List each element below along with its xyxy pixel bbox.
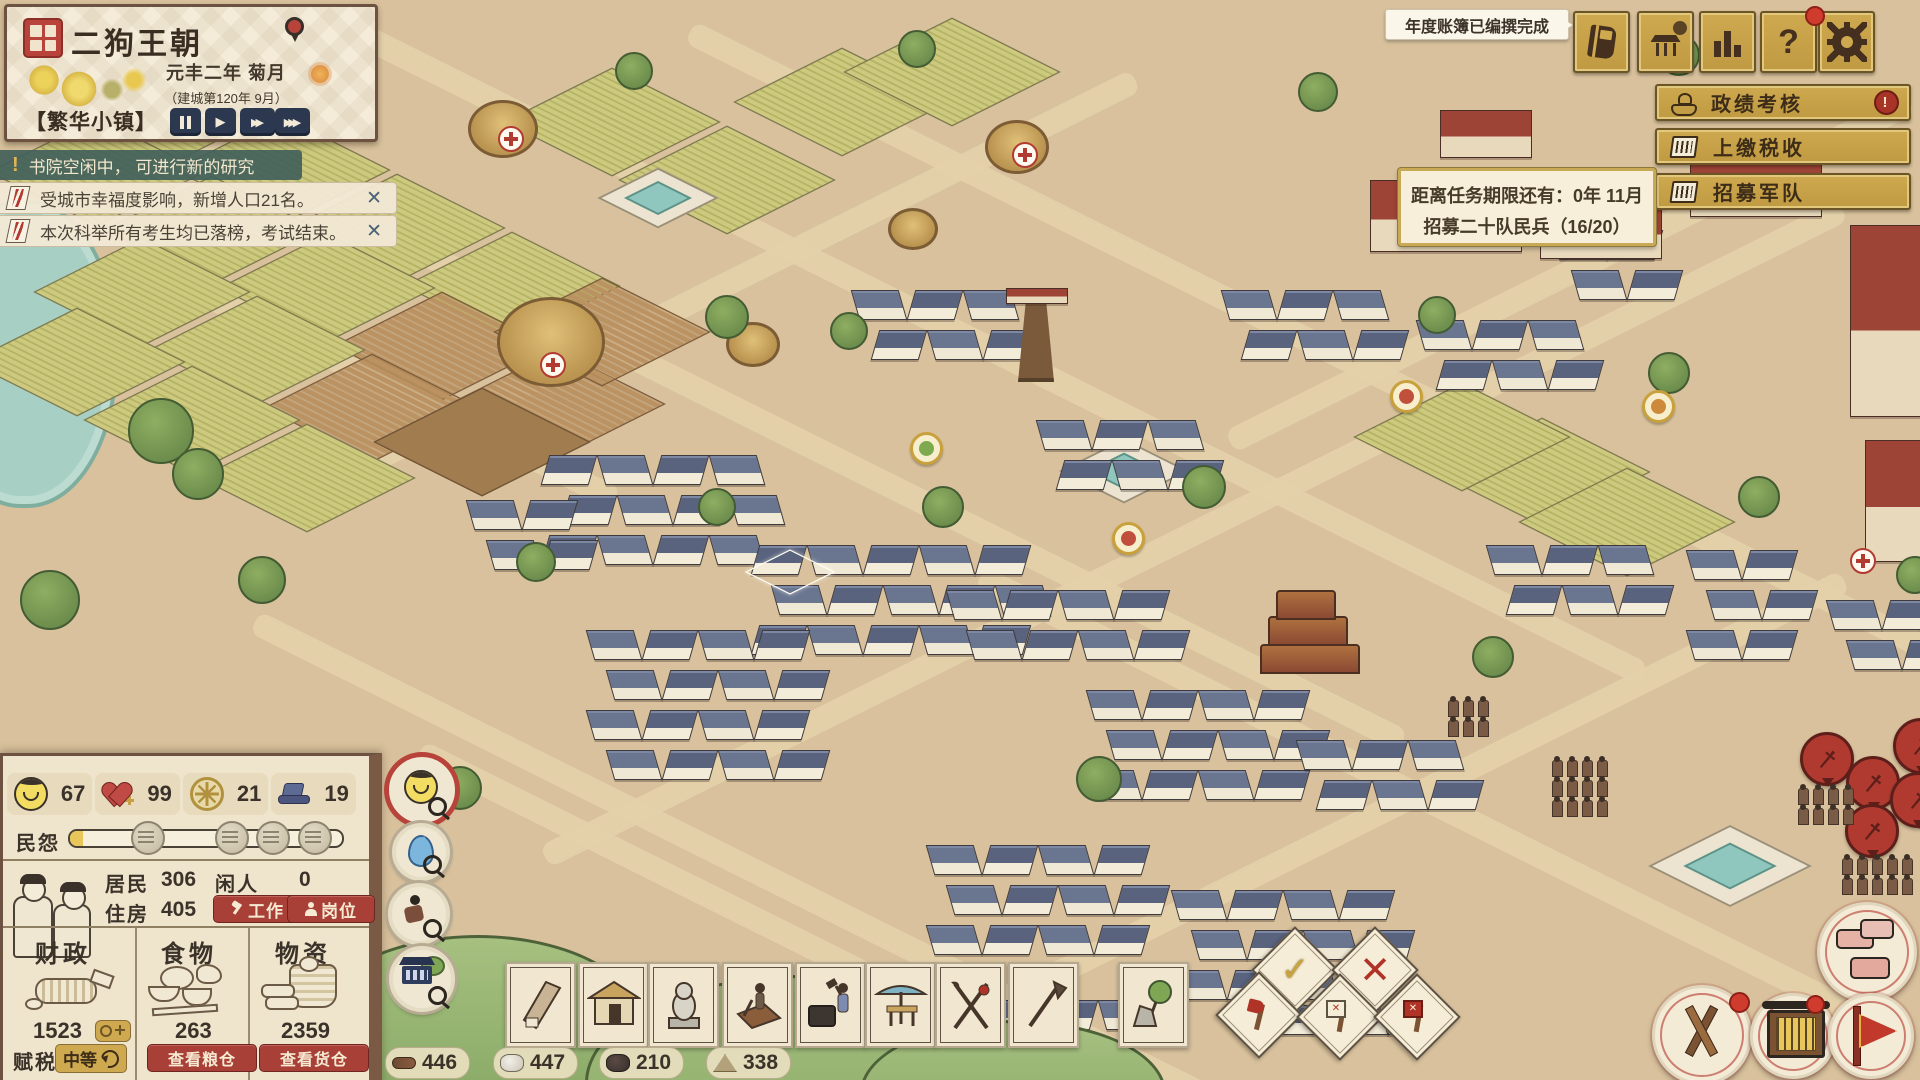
lion-statue-icon bbox=[657, 978, 711, 1032]
compass-ruler-icon bbox=[1675, 1004, 1727, 1056]
jobs-button[interactable]: 岗位 bbox=[287, 895, 375, 923]
play-button[interactable]: ▶ bbox=[205, 108, 236, 136]
map-house bbox=[966, 630, 1023, 660]
map-house bbox=[863, 625, 920, 655]
map-house bbox=[754, 710, 811, 740]
notification-exam[interactable]: 本次科举所有考生均已落榜，考试结束。 ✕ bbox=[0, 215, 397, 247]
map-house bbox=[466, 500, 523, 530]
tax-level-button[interactable]: 中等 bbox=[55, 1044, 127, 1073]
map-house bbox=[1002, 590, 1059, 620]
map-house bbox=[709, 455, 766, 485]
map-house bbox=[982, 845, 1039, 875]
official-icon bbox=[1671, 93, 1695, 113]
map-soldier bbox=[1597, 800, 1608, 817]
map-house bbox=[1112, 460, 1169, 490]
map-house bbox=[606, 750, 663, 780]
statistics-button[interactable] bbox=[1699, 11, 1756, 73]
map-house bbox=[1078, 630, 1135, 660]
ore-counter: 210 bbox=[599, 1047, 684, 1079]
map-pond bbox=[1648, 825, 1812, 907]
notification-population[interactable]: 受城市幸福度影响，新增人口21名。 ✕ bbox=[0, 182, 397, 214]
map-house bbox=[718, 670, 775, 700]
war-flag-icon bbox=[1847, 1006, 1897, 1064]
map-house bbox=[919, 545, 976, 575]
map-house bbox=[642, 630, 699, 660]
granary-label: 查看粮仓 bbox=[168, 1046, 236, 1070]
map-house bbox=[1562, 585, 1619, 615]
pay-taxes-button[interactable]: 上缴税收 bbox=[1655, 128, 1911, 165]
farmer-icon bbox=[730, 978, 786, 1032]
build-card-commerce[interactable] bbox=[865, 962, 936, 1048]
map-house bbox=[1428, 780, 1485, 810]
alert-badge: ! bbox=[1874, 90, 1899, 115]
fast-forward-button[interactable]: ▶▶ bbox=[240, 108, 275, 136]
finance-value: 1523 bbox=[33, 1018, 82, 1044]
map-soldier bbox=[1567, 800, 1578, 817]
map-tree bbox=[615, 52, 653, 90]
view-granary-button[interactable]: 查看粮仓 bbox=[147, 1044, 257, 1072]
map-soldier bbox=[1887, 858, 1898, 875]
map-tree bbox=[922, 486, 964, 528]
task-deadline: 距离任务期限还有：0年 11月 bbox=[1401, 182, 1653, 208]
build-card-government[interactable] bbox=[1008, 962, 1079, 1048]
fist-marker bbox=[256, 821, 290, 855]
map-tree bbox=[830, 312, 868, 350]
map-soldier bbox=[1842, 858, 1853, 875]
hammer-icon bbox=[230, 902, 244, 916]
map-militia-bubble: † bbox=[1893, 718, 1920, 774]
map-clinic-marker bbox=[1012, 142, 1038, 168]
stone-value: 447 bbox=[530, 1051, 565, 1075]
hammer-badge-icon bbox=[1403, 1002, 1431, 1032]
map-house bbox=[871, 330, 928, 360]
residents-value: 306 bbox=[161, 868, 196, 892]
coins-illustration bbox=[17, 962, 117, 1016]
exclamation-icon: ! bbox=[12, 154, 19, 177]
map-house bbox=[1486, 545, 1543, 575]
map-house bbox=[1283, 890, 1340, 920]
map-tree bbox=[172, 448, 224, 500]
map-soldier bbox=[1842, 878, 1853, 895]
map-house bbox=[1022, 630, 1079, 660]
map-house bbox=[1472, 320, 1529, 350]
map-pagoda bbox=[1252, 586, 1344, 682]
map-soldier bbox=[1597, 760, 1608, 777]
scroll-icon bbox=[5, 219, 30, 243]
map-house bbox=[1106, 730, 1163, 760]
map-tree bbox=[1076, 756, 1122, 802]
map-house bbox=[1058, 590, 1115, 620]
blacksmith-icon bbox=[803, 978, 859, 1032]
map-house bbox=[927, 330, 984, 360]
housing-label: 住房 bbox=[105, 898, 149, 927]
military-flag-button[interactable] bbox=[1828, 993, 1914, 1079]
road-icon bbox=[516, 978, 566, 1032]
map-house bbox=[807, 625, 864, 655]
map-house bbox=[1218, 730, 1275, 760]
map-soldier bbox=[1902, 878, 1913, 895]
map-house bbox=[1227, 890, 1284, 920]
map-house bbox=[1198, 690, 1255, 720]
map-house bbox=[1254, 690, 1311, 720]
map-soldier bbox=[1463, 700, 1474, 717]
map-house bbox=[1241, 330, 1298, 360]
question-mark-icon: ? bbox=[1778, 23, 1799, 62]
ledger-toast: 年度账簿已编撰完成 bbox=[1385, 9, 1569, 40]
map-house bbox=[642, 710, 699, 740]
grievance-fill bbox=[70, 831, 83, 846]
chat-bubble-icon bbox=[1860, 919, 1894, 939]
buildings-button[interactable] bbox=[1637, 11, 1694, 73]
map-house bbox=[883, 585, 940, 615]
map-house bbox=[1542, 545, 1599, 575]
map-soldier bbox=[1552, 800, 1563, 817]
map-house bbox=[1297, 330, 1354, 360]
messages-button[interactable] bbox=[1817, 902, 1917, 1002]
fist-marker bbox=[131, 821, 165, 855]
grievance-row: 民怨 bbox=[3, 822, 369, 856]
map-house bbox=[653, 535, 710, 565]
map-soldier bbox=[1828, 788, 1839, 805]
map-house bbox=[975, 545, 1032, 575]
map-shop-marker bbox=[1112, 522, 1145, 555]
residents-label: 居民 bbox=[105, 868, 149, 897]
jobs-label: 岗位 bbox=[321, 897, 357, 922]
officials-value: 19 bbox=[324, 781, 348, 807]
map-clinic-marker bbox=[540, 352, 566, 378]
map-house bbox=[586, 710, 643, 740]
fist-marker bbox=[215, 821, 249, 855]
house-icon bbox=[402, 966, 432, 984]
map-soldier bbox=[1902, 858, 1913, 875]
sand-icon bbox=[713, 1054, 737, 1072]
map-soldier bbox=[1582, 780, 1593, 797]
map-house bbox=[1492, 360, 1549, 390]
map-soldier bbox=[1552, 760, 1563, 777]
map-soldier bbox=[1567, 760, 1578, 777]
task-objective: 招募二十队民兵（16/20） bbox=[1401, 213, 1653, 239]
map-house bbox=[1142, 770, 1199, 800]
map-tree bbox=[698, 488, 736, 526]
scroll-icon bbox=[5, 186, 30, 210]
settings-alert-dot bbox=[1805, 6, 1825, 26]
notification-text: 本次科举所有考生均已落榜，考试结束。 bbox=[40, 219, 346, 244]
map-house bbox=[597, 535, 654, 565]
idle-value: 0 bbox=[299, 868, 311, 892]
map-house bbox=[1191, 930, 1248, 960]
stone-icon bbox=[500, 1054, 524, 1072]
map-tree bbox=[1648, 352, 1690, 394]
map-house bbox=[774, 750, 831, 780]
map-house bbox=[1706, 590, 1763, 620]
divider bbox=[3, 859, 369, 861]
map-house bbox=[1506, 585, 1563, 615]
fist-marker bbox=[298, 821, 332, 855]
map-soldier bbox=[1582, 800, 1593, 817]
wood-counter: 446 bbox=[385, 1047, 470, 1079]
map-house bbox=[729, 495, 786, 525]
ledger-button[interactable] bbox=[1573, 11, 1630, 73]
map-house bbox=[1372, 780, 1429, 810]
map-house bbox=[1058, 885, 1115, 915]
map-soldier bbox=[1582, 760, 1593, 777]
close-icon[interactable]: ✕ bbox=[366, 187, 382, 210]
map-tree bbox=[1182, 465, 1226, 509]
map-house bbox=[1353, 330, 1410, 360]
map-soldier bbox=[1478, 720, 1489, 737]
map-house bbox=[617, 495, 674, 525]
map-house bbox=[926, 845, 983, 875]
map-house bbox=[1548, 360, 1605, 390]
map-house bbox=[946, 590, 1003, 620]
build-card-military[interactable] bbox=[935, 962, 1006, 1048]
map-house bbox=[1221, 290, 1278, 320]
banner-label: 上缴税收 bbox=[1713, 132, 1805, 161]
map-house bbox=[662, 670, 719, 700]
map-house bbox=[653, 455, 710, 485]
goods-illustration bbox=[255, 962, 355, 1016]
map-house bbox=[1036, 420, 1093, 450]
garden-icon bbox=[1126, 978, 1182, 1032]
fastest-forward-button[interactable]: ▶▶▶ bbox=[275, 108, 310, 136]
map-house bbox=[1198, 770, 1255, 800]
map-soldier bbox=[1828, 808, 1839, 825]
coin-stat: 21 bbox=[183, 773, 268, 815]
notification-text: 书院空闲中， 可进行新的研究 bbox=[29, 153, 255, 178]
notification-text: 受城市幸福度影响，新增人口21名。 bbox=[40, 186, 314, 211]
map-soldier bbox=[1448, 700, 1459, 717]
recruit-army-button[interactable]: 招募军队 bbox=[1655, 173, 1911, 210]
map-watchtower bbox=[1018, 300, 1054, 382]
wood-value: 446 bbox=[422, 1051, 457, 1075]
gear-icon bbox=[1832, 27, 1862, 57]
hammer-flag-icon bbox=[1326, 1002, 1354, 1032]
build-card-lion[interactable] bbox=[648, 962, 719, 1048]
map-soldier bbox=[1463, 720, 1474, 737]
location-pin-icon[interactable] bbox=[285, 17, 304, 36]
map-house bbox=[1333, 290, 1390, 320]
city-seal-icon bbox=[23, 18, 63, 58]
map-house bbox=[718, 750, 775, 780]
tax-level: 中等 bbox=[63, 1046, 97, 1071]
game-screen: ††††† 二狗王朝 元丰二年 菊月 （建城第120年 9月） 【繁华小镇】 ▶… bbox=[0, 0, 1920, 1080]
map-red-building bbox=[1865, 440, 1920, 562]
pause-button[interactable] bbox=[170, 108, 201, 136]
map-house bbox=[1092, 420, 1149, 450]
map-house bbox=[1094, 845, 1151, 875]
map-house bbox=[1598, 545, 1655, 575]
map-soldier bbox=[1448, 720, 1459, 737]
map-house bbox=[698, 630, 755, 660]
map-house bbox=[1846, 640, 1903, 670]
sand-counter: 338 bbox=[706, 1047, 791, 1079]
health-stat: 99 bbox=[95, 773, 180, 815]
build-card-hut[interactable] bbox=[578, 962, 649, 1048]
map-house bbox=[1408, 740, 1465, 770]
food-value: 263 bbox=[175, 1018, 212, 1044]
map-watchtower-roof bbox=[1006, 288, 1068, 304]
ore-value: 210 bbox=[636, 1051, 671, 1075]
map-red-building bbox=[1440, 110, 1532, 158]
notice-alert-dot bbox=[1806, 995, 1825, 1014]
city-stats-panel: 67 99 21 19 民怨 居民 306 闲人 0 bbox=[0, 753, 382, 1080]
stone-counter: 447 bbox=[493, 1047, 578, 1079]
map-soldier bbox=[1872, 858, 1883, 875]
map-soldier bbox=[1857, 878, 1868, 895]
map-house bbox=[1094, 925, 1151, 955]
person-icon bbox=[305, 902, 317, 916]
happiness-overlay-button[interactable] bbox=[389, 757, 455, 823]
map-red-building bbox=[1850, 225, 1920, 417]
map-soldier bbox=[1843, 788, 1854, 805]
city-header-panel: 二狗王朝 元丰二年 菊月 （建城第120年 9月） 【繁华小镇】 ▶ ▶▶ ▶▶… bbox=[4, 4, 378, 142]
map-house bbox=[827, 585, 884, 615]
scroll-icon bbox=[1669, 136, 1698, 158]
map-house bbox=[982, 925, 1039, 955]
health-value: 99 bbox=[147, 781, 171, 807]
column-divider bbox=[135, 928, 137, 1080]
book-icon bbox=[1586, 24, 1616, 59]
settings-button[interactable] bbox=[1818, 11, 1875, 73]
map-shop-marker bbox=[910, 432, 943, 465]
water-overlay-button[interactable] bbox=[392, 823, 450, 881]
map-house bbox=[1528, 320, 1585, 350]
map-house bbox=[1826, 600, 1883, 630]
map-house bbox=[1352, 740, 1409, 770]
build-alert-dot bbox=[1729, 992, 1750, 1013]
map-clinic-marker bbox=[498, 126, 524, 152]
coin-value: 21 bbox=[237, 781, 261, 807]
map-house bbox=[1038, 925, 1095, 955]
founding-date: （建城第120年 9月） bbox=[143, 88, 309, 107]
map-house bbox=[1114, 885, 1171, 915]
wood-icon bbox=[392, 1057, 416, 1069]
map-tree bbox=[1418, 296, 1456, 334]
map-tree bbox=[1298, 72, 1338, 112]
housing-value: 405 bbox=[161, 898, 196, 922]
map-house bbox=[1686, 550, 1743, 580]
pavilion-icon bbox=[1649, 27, 1683, 57]
worker-overlay-button[interactable] bbox=[388, 883, 450, 945]
notification-academy-idle[interactable]: ! 书院空闲中， 可进行新的研究 bbox=[0, 150, 302, 180]
ore-icon bbox=[606, 1054, 630, 1072]
map-house bbox=[1148, 420, 1205, 450]
map-house bbox=[522, 500, 579, 530]
task-deadline-panel: 距离任务期限还有：0年 11月 招募二十队民兵（16/20） bbox=[1398, 168, 1656, 246]
map-house bbox=[754, 630, 811, 660]
farmer-icon bbox=[402, 895, 428, 925]
map-house bbox=[946, 885, 1003, 915]
map-house bbox=[1618, 585, 1675, 615]
grievance-label: 民怨 bbox=[16, 827, 60, 856]
map-house bbox=[597, 455, 654, 485]
map-house bbox=[662, 750, 719, 780]
food-illustration bbox=[138, 962, 238, 1016]
warehouse-label: 查看货仓 bbox=[280, 1046, 348, 1070]
map-house bbox=[1762, 590, 1819, 620]
map-house bbox=[1162, 730, 1219, 760]
map-house bbox=[1171, 890, 1228, 920]
map-tree bbox=[1472, 636, 1514, 678]
map-house bbox=[1339, 890, 1396, 920]
map-house bbox=[1038, 845, 1095, 875]
view-warehouse-button[interactable]: 查看货仓 bbox=[259, 1044, 369, 1072]
sand-value: 338 bbox=[743, 1051, 778, 1075]
work-label: 工作 bbox=[248, 897, 284, 922]
banner-label: 招募军队 bbox=[1713, 177, 1805, 206]
map-tree bbox=[898, 30, 936, 68]
wheel-coin-icon bbox=[190, 777, 224, 811]
happiness-stat: 67 bbox=[7, 773, 92, 815]
official-hat-icon bbox=[278, 782, 310, 806]
map-tree bbox=[20, 570, 80, 630]
map-house bbox=[1142, 690, 1199, 720]
map-house bbox=[1277, 290, 1334, 320]
map-house bbox=[1134, 630, 1191, 660]
performance-review-button[interactable]: 政绩考核 ! bbox=[1655, 84, 1911, 121]
check-icon: ✓ bbox=[1281, 950, 1310, 990]
build-card-road[interactable] bbox=[505, 962, 576, 1048]
close-icon[interactable]: ✕ bbox=[366, 220, 382, 243]
heart-icon bbox=[103, 781, 131, 807]
build-card-farming[interactable] bbox=[722, 962, 793, 1048]
map-house bbox=[926, 925, 983, 955]
map-soldier bbox=[1813, 808, 1824, 825]
axe-icon bbox=[1246, 1000, 1272, 1030]
map-house bbox=[606, 670, 663, 700]
map-thatch-hut bbox=[888, 208, 938, 250]
map-house bbox=[1571, 270, 1628, 300]
map-house bbox=[1316, 780, 1373, 810]
map-soldier bbox=[1567, 780, 1578, 797]
hut-icon bbox=[587, 978, 641, 1032]
map-house bbox=[1086, 690, 1143, 720]
map-tree bbox=[1738, 476, 1780, 518]
map-house bbox=[1056, 460, 1113, 490]
map-house bbox=[907, 290, 964, 320]
map-shop-marker bbox=[1642, 390, 1675, 423]
map-house bbox=[1114, 590, 1171, 620]
city-name: 二狗王朝 bbox=[71, 19, 203, 63]
goods-value: 2359 bbox=[281, 1018, 330, 1044]
map-tree bbox=[1896, 556, 1920, 594]
building-overlay-button[interactable] bbox=[389, 946, 455, 1012]
map-house bbox=[1254, 770, 1311, 800]
map-house bbox=[1296, 740, 1353, 770]
map-house bbox=[1002, 885, 1059, 915]
map-house bbox=[541, 455, 598, 485]
map-house bbox=[774, 670, 831, 700]
banner-label: 政绩考核 bbox=[1711, 88, 1803, 117]
refresh-icon bbox=[98, 1046, 123, 1071]
happiness-value: 67 bbox=[61, 781, 85, 807]
income-badge-icon bbox=[95, 1020, 131, 1042]
chrysanthemum-art bbox=[27, 63, 61, 97]
sun-weather-icon bbox=[311, 65, 329, 83]
market-umbrella-icon bbox=[873, 978, 929, 1032]
map-tree bbox=[516, 542, 556, 582]
officials-stat: 19 bbox=[271, 773, 356, 815]
magnifier-icon bbox=[423, 855, 442, 874]
map-house bbox=[1627, 270, 1684, 300]
map-house bbox=[1686, 630, 1743, 660]
build-card-industry[interactable] bbox=[795, 962, 866, 1048]
city-title: 【繁华小镇】 bbox=[25, 106, 157, 136]
map-clinic-marker bbox=[1850, 548, 1876, 574]
date-block: 元丰二年 菊月 （建城第120年 9月） bbox=[143, 59, 309, 107]
magnifier-icon bbox=[428, 797, 447, 816]
build-card-garden[interactable] bbox=[1118, 962, 1189, 1048]
